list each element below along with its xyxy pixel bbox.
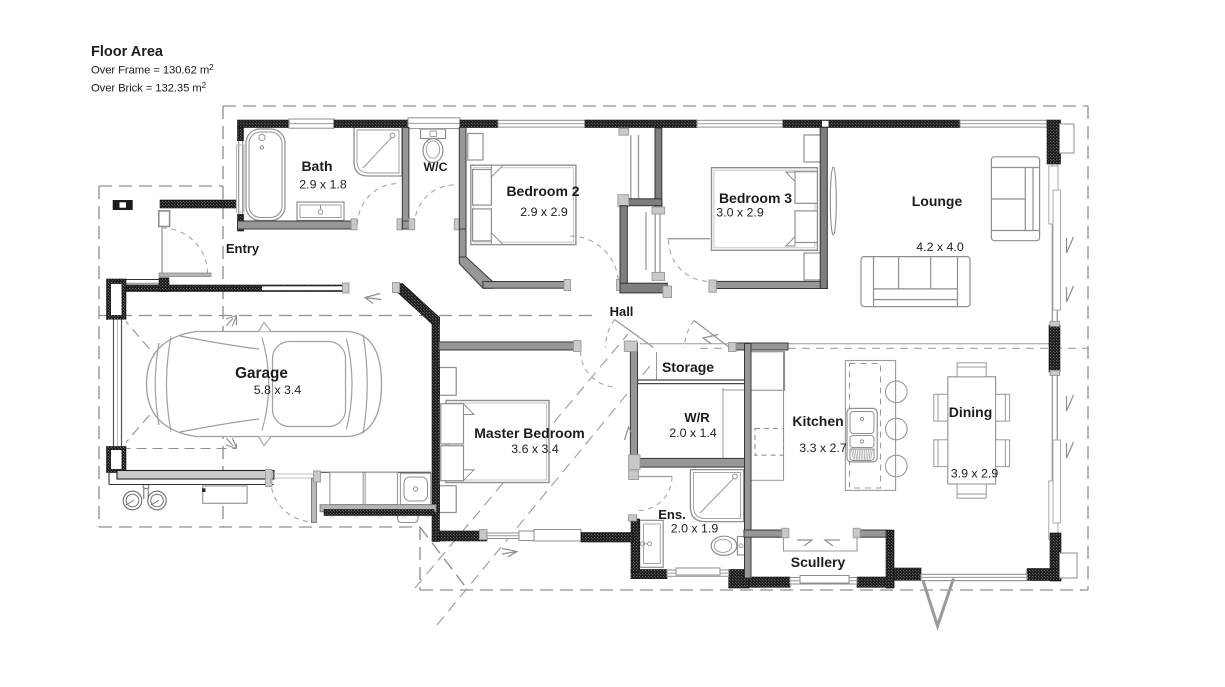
svg-text:4.2 x 4.0: 4.2 x 4.0 (916, 240, 964, 254)
svg-text:Over Brick = 132.35 m2: Over Brick = 132.35 m2 (91, 81, 207, 95)
svg-text:W/C: W/C (424, 160, 448, 174)
svg-text:Ens.: Ens. (658, 507, 685, 522)
svg-text:3.6 x 3.4: 3.6 x 3.4 (511, 442, 559, 456)
svg-text:Kitchen: Kitchen (792, 413, 843, 429)
svg-text:Floor Area: Floor Area (91, 44, 164, 60)
svg-text:W/R: W/R (684, 410, 710, 425)
svg-text:Master Bedroom: Master Bedroom (474, 425, 584, 441)
svg-text:Over Frame = 130.62 m2: Over Frame = 130.62 m2 (91, 63, 214, 77)
svg-text:Garage: Garage (235, 365, 288, 382)
svg-text:2.9 x 1.8: 2.9 x 1.8 (299, 178, 347, 192)
svg-text:2.0 x 1.4: 2.0 x 1.4 (669, 426, 717, 440)
svg-text:Bedroom 3: Bedroom 3 (719, 190, 792, 206)
svg-text:Hall: Hall (610, 304, 634, 319)
svg-text:Lounge: Lounge (912, 193, 963, 209)
svg-text:5.8 x 3.4: 5.8 x 3.4 (254, 383, 302, 397)
svg-text:Storage: Storage (662, 359, 714, 375)
svg-text:3.0 x 2.9: 3.0 x 2.9 (716, 206, 764, 220)
svg-text:Entry: Entry (226, 241, 260, 256)
svg-text:3.3 x 2.7: 3.3 x 2.7 (799, 441, 847, 455)
svg-text:Scullery: Scullery (791, 554, 846, 570)
svg-text:Bath: Bath (301, 158, 332, 174)
svg-text:Bedroom 2: Bedroom 2 (506, 183, 579, 199)
svg-text:2.0 x 1.9: 2.0 x 1.9 (671, 522, 719, 536)
svg-text:2.9 x 2.9: 2.9 x 2.9 (520, 205, 568, 219)
svg-text:Dining: Dining (949, 404, 993, 420)
svg-text:3.9 x 2.9: 3.9 x 2.9 (951, 467, 999, 481)
